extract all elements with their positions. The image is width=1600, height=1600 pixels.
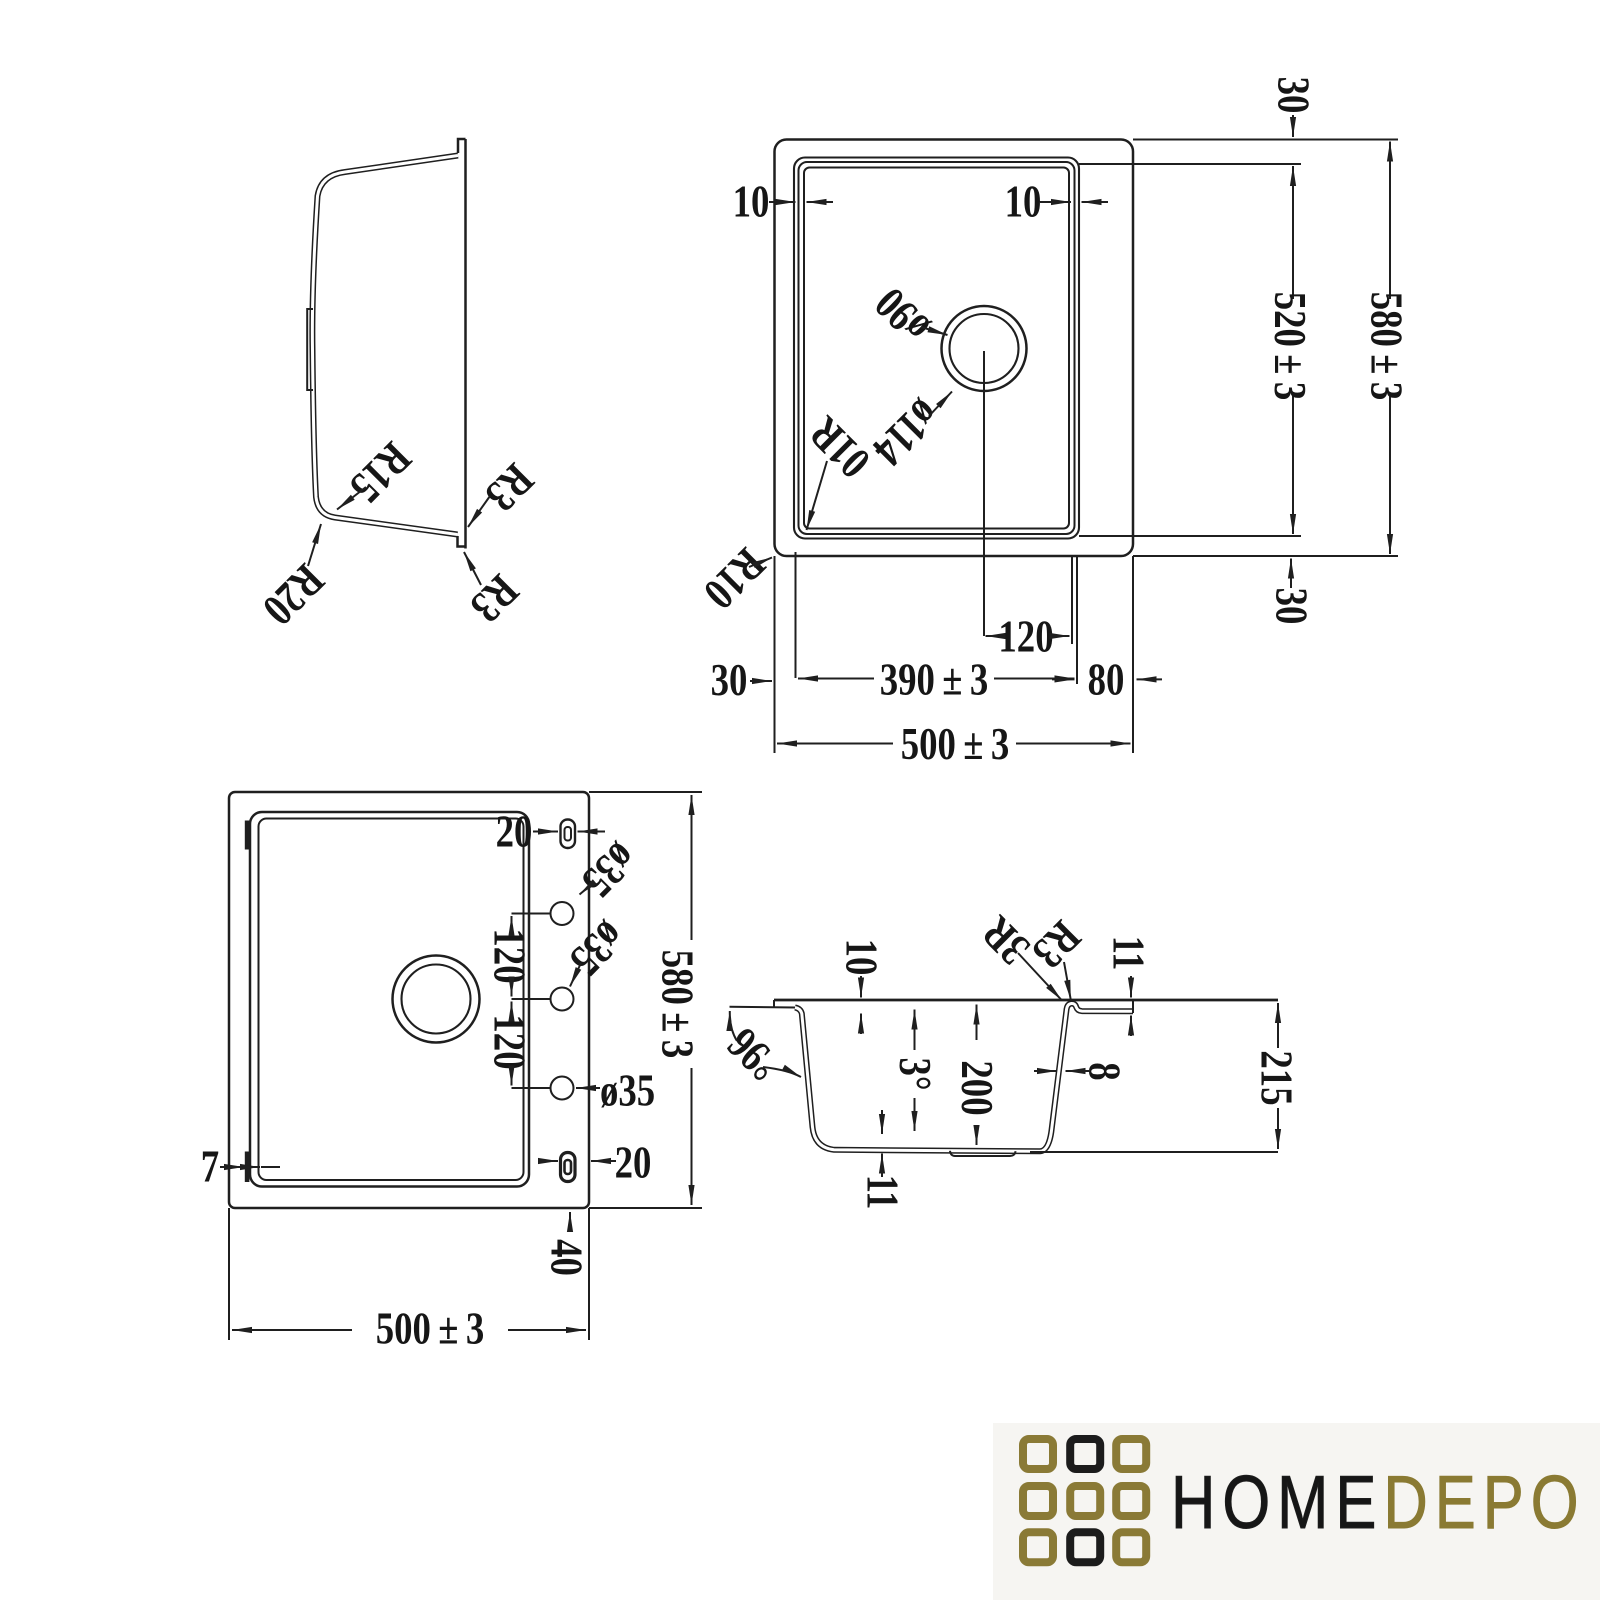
svg-text:11: 11 [1103, 936, 1154, 971]
svg-text:390 ± 3: 390 ± 3 [880, 655, 988, 706]
svg-text:20: 20 [496, 807, 533, 858]
svg-text:20: 20 [615, 1138, 652, 1189]
svg-text:520 ± 3: 520 ± 3 [1264, 292, 1315, 400]
svg-text:30: 30 [1266, 588, 1317, 625]
svg-text:120: 120 [484, 928, 535, 983]
svg-text:200: 200 [951, 1060, 1002, 1115]
svg-text:7: 7 [201, 1142, 219, 1193]
svg-text:580 ± 3: 580 ± 3 [1361, 292, 1412, 400]
svg-text:3°: 3° [889, 1057, 940, 1090]
svg-text:ø35: ø35 [600, 1066, 655, 1117]
svg-text:500 ± 3: 500 ± 3 [901, 719, 1009, 770]
svg-text:580 ± 3: 580 ± 3 [652, 950, 703, 1058]
svg-text:40: 40 [541, 1239, 592, 1276]
svg-text:30: 30 [711, 655, 748, 706]
svg-text:10: 10 [733, 177, 770, 228]
svg-text:120: 120 [484, 1014, 535, 1069]
svg-text:120: 120 [998, 612, 1053, 663]
svg-text:500 ± 3: 500 ± 3 [376, 1304, 484, 1355]
svg-text:11: 11 [857, 1175, 908, 1210]
svg-text:10: 10 [1005, 177, 1042, 228]
svg-text:10: 10 [836, 939, 887, 976]
svg-text:215: 215 [1251, 1050, 1302, 1105]
svg-text:HOMEDEPO: HOMEDEPO [1171, 1460, 1586, 1544]
svg-text:30: 30 [1268, 77, 1319, 114]
svg-text:80: 80 [1088, 655, 1125, 706]
